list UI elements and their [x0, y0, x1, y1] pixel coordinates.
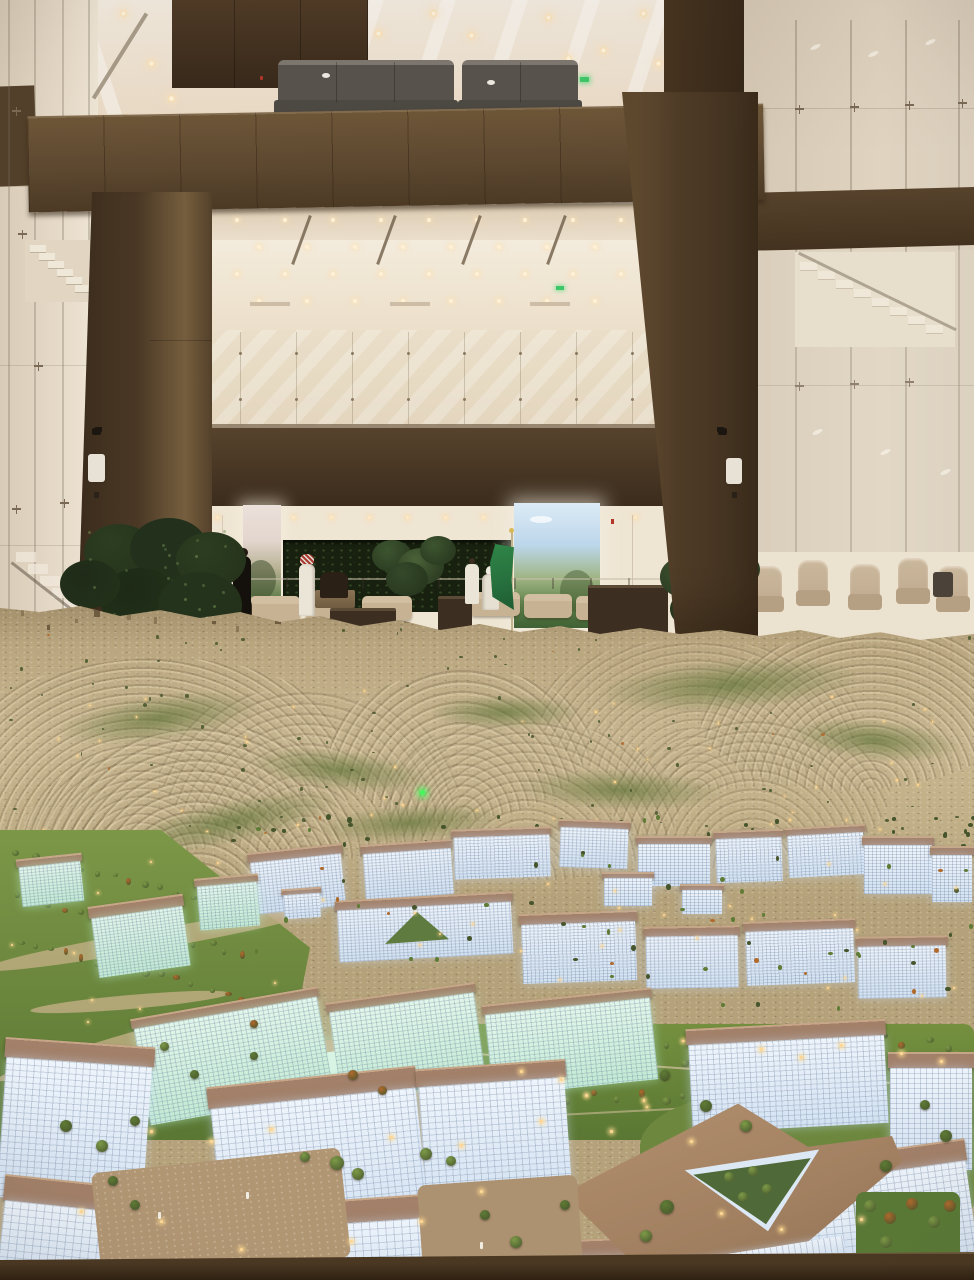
mezzanine-light	[331, 218, 335, 222]
district-lamp	[663, 914, 665, 916]
mezzanine-light	[497, 245, 501, 249]
railing-post	[514, 578, 516, 589]
foreground-tree	[352, 1168, 364, 1180]
visitor-body	[465, 564, 479, 604]
garden-tree	[880, 1236, 892, 1248]
district-tree	[720, 877, 725, 882]
foreground-tree	[940, 1130, 952, 1142]
district-lamp	[559, 979, 561, 981]
terrain-lamp	[246, 741, 248, 743]
plant-leaf-dot	[167, 577, 170, 580]
distant-building	[94, 610, 100, 617]
street-lamp	[760, 1048, 763, 1051]
ceiling-light	[640, 10, 647, 17]
office-building	[930, 846, 974, 902]
office-building	[855, 935, 948, 999]
plant-leaf-dot	[168, 554, 171, 557]
campus-tree	[142, 881, 149, 888]
mezzanine-light	[545, 245, 549, 249]
terrain-tree	[185, 642, 187, 645]
tree-band-tree	[964, 829, 967, 834]
balustrade-fitting	[631, 398, 634, 401]
terrain-lamp	[917, 784, 919, 786]
terrain-tree	[372, 752, 375, 754]
district-tree	[320, 867, 323, 871]
spider-fitting-icon	[22, 230, 24, 239]
balustrade-glass-line	[352, 332, 353, 424]
foreground-tree	[108, 1176, 118, 1186]
tree-band-tree	[271, 828, 276, 832]
balustrade-fitting	[463, 352, 466, 355]
terrain-lamp	[181, 810, 183, 812]
mezzanine-light	[235, 218, 239, 222]
office-building	[602, 872, 654, 906]
building-facade	[453, 834, 550, 879]
courtyard-tree	[738, 1192, 748, 1202]
person-seated-dark	[320, 572, 348, 598]
street-lamp	[560, 1078, 563, 1081]
terrain-tree	[241, 768, 245, 772]
stair-step	[57, 269, 73, 276]
terrain-tree	[904, 778, 907, 781]
distant-building	[127, 615, 131, 619]
terrain-tree	[297, 737, 301, 740]
distant-building	[75, 619, 78, 623]
district-lamp	[439, 933, 441, 935]
park-tree	[680, 1093, 685, 1099]
terrain-tree	[591, 804, 594, 807]
district-tree	[610, 975, 614, 979]
campus-lamp	[139, 1008, 141, 1010]
lobby-ceiling-light	[406, 516, 409, 519]
garden-tree	[884, 1212, 896, 1224]
terrain-tree	[342, 629, 345, 632]
vegetation-corridor	[430, 695, 580, 729]
sofa-seam	[520, 62, 521, 102]
building-facade	[864, 845, 932, 894]
city-model-zone	[0, 600, 974, 1280]
security-camera-icon	[92, 428, 101, 435]
lobby-railing	[205, 578, 675, 580]
wall-device-box	[88, 454, 105, 482]
district-tree	[710, 919, 715, 922]
district-tree	[837, 1006, 840, 1011]
atrium-city-model-photo	[0, 0, 974, 1280]
spider-fitting-icon	[854, 103, 856, 112]
park-tree	[591, 1090, 596, 1096]
mezzanine-ceiling	[203, 240, 681, 334]
terrain-tree	[578, 648, 580, 651]
district-tree	[778, 965, 782, 969]
district-lamp	[614, 890, 616, 892]
wall-device-small	[94, 492, 99, 498]
mezzanine-light	[619, 218, 623, 222]
street-lamp	[460, 1144, 463, 1147]
building-facade	[932, 855, 972, 902]
balustrade-shimmer	[203, 330, 681, 426]
balustrade-fitting	[519, 398, 522, 401]
office-building	[519, 910, 639, 984]
office-building	[194, 873, 262, 930]
office-building	[785, 824, 868, 878]
ceiling-vent	[530, 302, 570, 306]
stair-step	[48, 261, 64, 268]
foreground-tree	[160, 1042, 169, 1051]
terrain-tree	[590, 740, 592, 743]
building-facade	[604, 878, 652, 906]
panel-seam	[234, 0, 235, 88]
terrain-tree	[102, 728, 104, 730]
street-lamp	[780, 1228, 783, 1231]
terrain-tree	[400, 628, 402, 631]
district-lamp	[618, 907, 620, 909]
foreground-tree	[378, 1086, 387, 1095]
stair-step	[28, 564, 48, 574]
foreground-tree	[130, 1116, 140, 1126]
lobby-ceiling-light	[216, 516, 219, 519]
model-figurine	[158, 1212, 161, 1219]
mezzanine-light	[571, 272, 575, 276]
ceiling-light	[600, 47, 607, 54]
foreground-tree	[250, 1020, 258, 1028]
campus-tree	[157, 884, 163, 890]
right-brown-band	[739, 187, 974, 251]
plant-foliage	[60, 560, 120, 608]
foreground-tree	[250, 1052, 258, 1060]
terrain-lamp	[789, 819, 791, 821]
district-tree	[534, 862, 538, 867]
terrain-tree	[156, 635, 159, 638]
building-facade	[18, 861, 84, 908]
balustrade-glass-line	[296, 332, 297, 424]
ceiling-light	[430, 10, 437, 17]
tree-band-tree	[347, 817, 351, 822]
plant-leaf-dot	[195, 555, 198, 558]
column-seam	[150, 340, 212, 341]
terrain-tree	[9, 719, 13, 721]
district-lamp	[844, 977, 846, 979]
mezzanine-light	[305, 245, 309, 249]
park-lamp	[682, 1040, 684, 1042]
foreground-tree	[348, 1070, 358, 1080]
office-building	[680, 884, 724, 914]
foreground-tree	[560, 1200, 570, 1210]
campus-tree	[191, 942, 195, 948]
mezzanine-light	[235, 272, 239, 276]
alarm-device	[611, 519, 614, 524]
terrain-lamp	[816, 786, 818, 788]
terrain-tree	[598, 720, 600, 723]
stair-step	[39, 253, 55, 260]
street-lamp	[860, 1218, 863, 1221]
mezzanine-light	[619, 272, 623, 276]
terrain-tree	[361, 778, 365, 781]
terrain-tree	[302, 818, 305, 822]
railing-post	[286, 578, 288, 589]
foreground-tree	[446, 1156, 456, 1166]
district-tree	[357, 904, 360, 907]
lobby-ceiling-light	[444, 516, 447, 519]
campus-tree	[62, 908, 68, 913]
street-lamp	[690, 1140, 693, 1143]
terrain-tree	[201, 725, 203, 728]
foreground-tree	[480, 1210, 490, 1220]
lobby-ceiling-light	[330, 516, 333, 519]
terrain-lamp	[206, 831, 208, 833]
balustrade-fitting	[239, 352, 242, 355]
office-building	[451, 826, 553, 879]
mezzanine-light	[257, 245, 261, 249]
district-tree	[666, 884, 670, 889]
courtyard-tree	[762, 1184, 772, 1194]
terrain-tree	[264, 832, 267, 834]
railing-post	[552, 578, 554, 589]
terrain-lamp	[297, 824, 299, 826]
district-lamp	[856, 929, 858, 931]
balustrade-fitting	[631, 352, 634, 355]
street-lamp	[610, 1130, 613, 1133]
terrain-lamp	[394, 766, 396, 768]
terrain-tree	[326, 741, 328, 744]
office-building	[360, 839, 456, 900]
security-camera-icon	[718, 428, 727, 435]
street-lamp	[540, 1120, 543, 1123]
street-lamp	[210, 1140, 213, 1143]
screen-cloud	[530, 516, 552, 523]
terrain-lamp	[245, 736, 247, 738]
terrain-lamp	[709, 748, 711, 750]
balustrade-fitting	[519, 352, 522, 355]
district-tree	[740, 889, 744, 894]
foreground-tree	[740, 1120, 752, 1132]
terrain-tree	[770, 712, 772, 714]
balustrade-glass-line	[240, 332, 241, 424]
district-tree	[484, 903, 488, 907]
street-lamp	[420, 1220, 423, 1223]
tree-band-tree	[231, 839, 236, 842]
garden-tree	[944, 1200, 956, 1212]
mezzanine-light	[523, 272, 527, 276]
terrain-tree	[150, 764, 152, 766]
foreground-tree	[660, 1070, 670, 1080]
glass-sheen-overlay	[744, 250, 974, 650]
spider-fitting-icon	[16, 107, 18, 116]
terrain-lamp	[846, 819, 848, 821]
plant-leaf-dot	[89, 558, 92, 561]
campus-tree	[210, 940, 217, 946]
courtyard-tree	[724, 1172, 734, 1182]
campus-lamp	[97, 892, 99, 894]
lobby-sofa	[524, 594, 572, 618]
mezzanine-light	[449, 299, 453, 303]
district-lamp	[834, 914, 836, 916]
street-lamp	[390, 1136, 393, 1139]
building-facade	[283, 893, 321, 919]
terrain-tree	[608, 734, 610, 736]
ceiling-light	[375, 30, 382, 37]
terrain-tree	[325, 786, 329, 788]
tree-band-tree	[968, 823, 973, 827]
terrain-lamp	[718, 722, 720, 724]
street-lamp	[270, 1128, 273, 1131]
balustrade-glass-line	[576, 332, 577, 424]
district-tree	[912, 989, 916, 994]
saudi-flag-finial	[509, 528, 514, 533]
glass-mullion	[8, 0, 10, 650]
stair-step	[75, 285, 91, 292]
street-lamp	[80, 1210, 83, 1213]
district-tree	[336, 897, 339, 902]
foreground-tree	[920, 1100, 930, 1110]
street-lamp	[940, 1060, 943, 1063]
balustrade-fitting	[295, 352, 298, 355]
terrain-tree	[705, 825, 708, 827]
mezzanine-light	[593, 299, 597, 303]
balustrade-fitting	[351, 352, 354, 355]
thobe-body	[299, 564, 315, 616]
office-building	[281, 887, 323, 920]
building-facade	[682, 890, 722, 914]
sofa-reflection-light	[487, 80, 495, 85]
terrain-tree	[185, 694, 189, 697]
building-roof	[862, 836, 934, 845]
district-tree	[938, 869, 943, 872]
ceiling-light	[120, 10, 127, 17]
wall-device-box	[726, 458, 742, 484]
office-building	[557, 819, 631, 869]
mezzanine-light	[427, 218, 431, 222]
ceiling-light	[168, 95, 175, 102]
street-lamp	[900, 1052, 903, 1055]
terrain-tree	[385, 796, 388, 798]
district-tree	[887, 864, 890, 869]
terrain-tree	[676, 763, 679, 766]
terrain-tree	[827, 801, 829, 804]
garden-tree	[864, 1200, 876, 1212]
model-figurine	[246, 1192, 249, 1199]
district-tree	[284, 917, 288, 922]
balustrade-glass-line	[632, 332, 633, 424]
building-facade	[787, 832, 865, 878]
office-building	[713, 829, 785, 883]
foreground-tree	[60, 1120, 72, 1132]
lobby-ceiling-light	[634, 516, 637, 519]
lobby-ceiling-light	[292, 516, 295, 519]
glass-joint	[0, 365, 98, 366]
campus-tree	[64, 948, 68, 955]
building-facade	[559, 826, 628, 869]
terrain-tree	[459, 656, 463, 659]
terrain-tree	[901, 827, 904, 830]
district-tree	[255, 949, 258, 954]
green-laser-dot	[420, 790, 425, 795]
mezzanine-light	[427, 272, 431, 276]
district-tree	[631, 945, 636, 950]
mezzanine-light	[497, 299, 501, 303]
terrain-tree	[10, 687, 12, 689]
tree-band-tree	[348, 823, 353, 827]
exit-sign	[556, 286, 564, 290]
terrain-tree	[531, 735, 534, 738]
district-lamp	[472, 923, 474, 925]
terrain-tree	[243, 744, 247, 747]
sofa-seam	[394, 62, 395, 102]
district-tree	[435, 957, 439, 962]
campus-lamp	[87, 1021, 89, 1023]
building-facade	[363, 848, 454, 900]
glass-mullion	[62, 0, 64, 650]
campus-tree	[210, 988, 216, 993]
plant-leaf-dot	[223, 530, 226, 533]
glass-joint	[744, 108, 974, 109]
campus-tree	[173, 975, 180, 979]
foreground-tree	[660, 1200, 674, 1214]
mezzanine-light	[283, 218, 287, 222]
building-facade	[91, 905, 191, 978]
garden-tree	[906, 1198, 918, 1210]
spider-fitting-icon	[38, 362, 40, 371]
foreground-tree	[330, 1156, 344, 1170]
stair-step	[66, 277, 82, 284]
spider-fitting-icon	[962, 99, 964, 108]
street-lamp	[840, 1044, 843, 1047]
foreground-tree	[420, 1148, 432, 1160]
terrain-lamp	[614, 781, 616, 783]
balustrade-glass-line	[408, 332, 409, 424]
terrain-lamp	[136, 716, 138, 718]
wall-device-small	[732, 492, 737, 498]
exit-sign	[580, 77, 589, 82]
park-tree	[945, 1045, 952, 1053]
district-tree	[949, 933, 952, 937]
garden-tree	[928, 1216, 940, 1228]
mezzanine-light	[353, 299, 357, 303]
foreground-tree	[880, 1160, 892, 1172]
spider-fitting-icon	[799, 105, 801, 114]
terrain-tree	[241, 638, 244, 640]
park-tree	[926, 1037, 934, 1043]
ceiling-vent	[250, 302, 290, 306]
terrain-tree	[395, 802, 398, 806]
balustrade-fitting	[463, 398, 466, 401]
plant-foliage	[386, 562, 428, 596]
foreground-tree	[130, 1200, 140, 1210]
campus-tree	[33, 944, 39, 949]
office-building	[87, 894, 192, 979]
building-facade	[197, 882, 261, 931]
balustrade-fitting	[575, 398, 578, 401]
building-roof	[636, 836, 712, 844]
campus-lamp	[11, 944, 13, 946]
terrain-tree	[20, 667, 23, 670]
tree-band-tree	[237, 826, 240, 829]
foreground-tree	[700, 1100, 712, 1112]
terrain-lamp	[371, 814, 373, 816]
balustrade-fitting	[239, 398, 242, 401]
spider-fitting-icon	[16, 505, 18, 514]
foreground-tree	[96, 1140, 108, 1152]
district-tree	[945, 987, 950, 992]
district-tree	[762, 913, 765, 917]
stair-step	[30, 245, 46, 252]
balustrade-fitting	[295, 398, 298, 401]
tree-band-tree	[944, 832, 948, 835]
terrain-tree	[160, 694, 163, 697]
distant-building	[47, 625, 50, 630]
mezzanine-light	[353, 245, 357, 249]
railing-post	[438, 578, 440, 589]
mezzanine-light	[305, 299, 309, 303]
